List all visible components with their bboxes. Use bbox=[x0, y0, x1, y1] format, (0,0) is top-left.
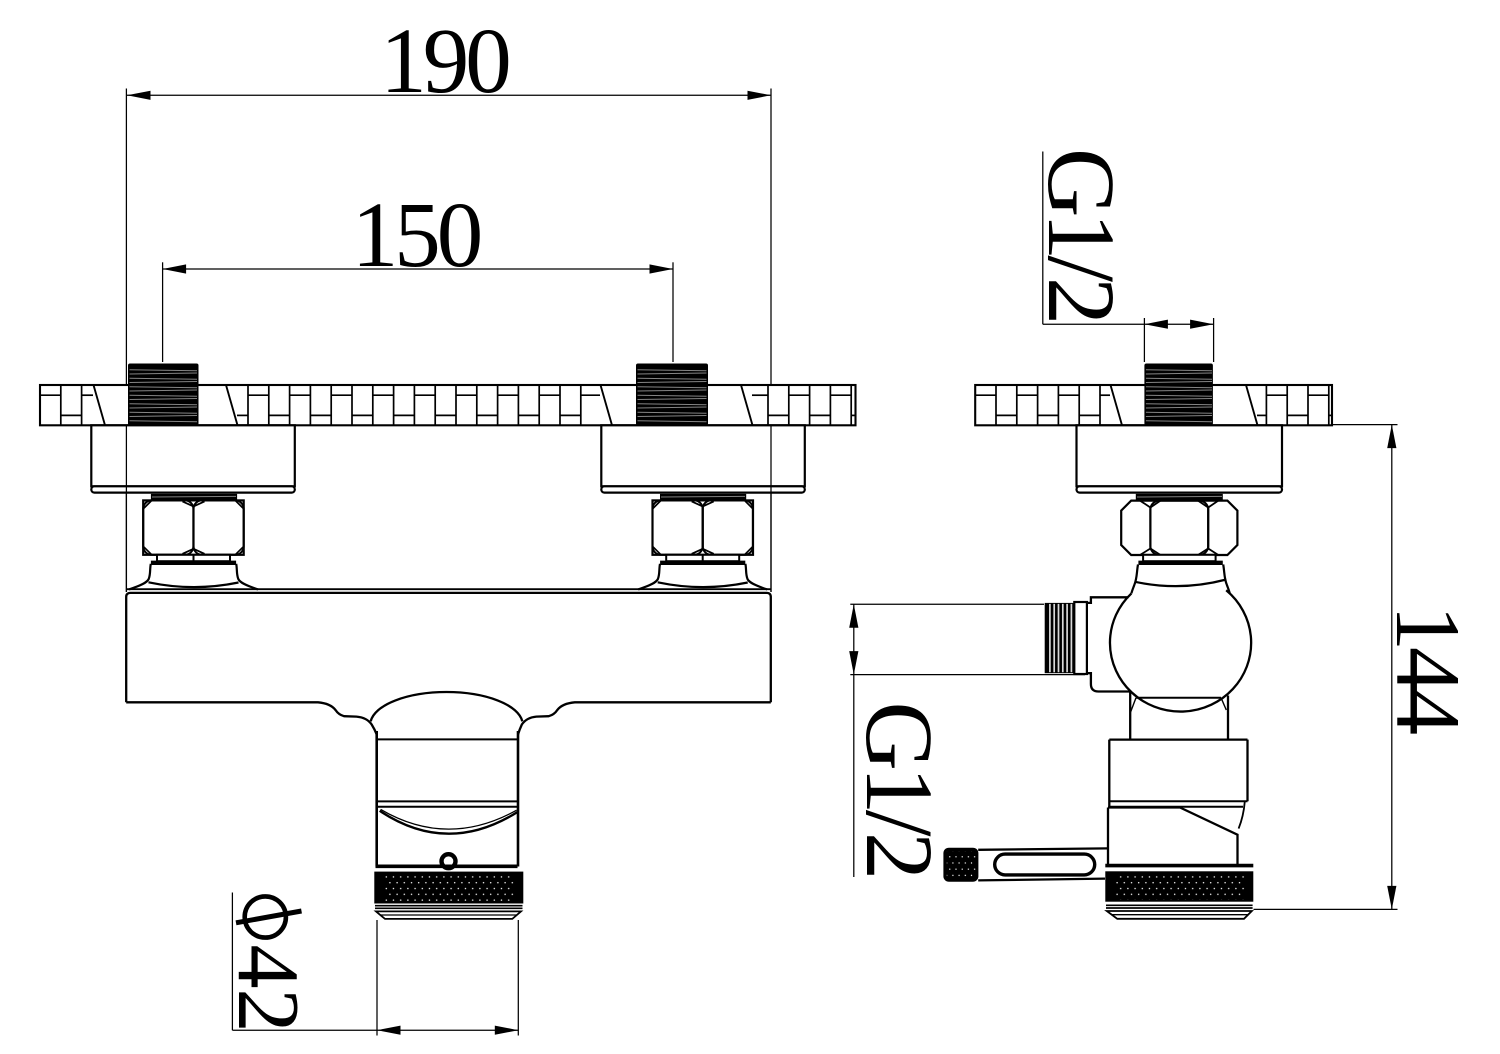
svg-text:G1/2: G1/2 bbox=[1028, 148, 1135, 320]
svg-text:150: 150 bbox=[352, 184, 480, 287]
svg-text:144: 144 bbox=[1377, 605, 1479, 734]
svg-text:G1/2: G1/2 bbox=[846, 702, 953, 876]
svg-text:190: 190 bbox=[380, 10, 508, 113]
svg-text:42: 42 bbox=[219, 945, 316, 1033]
